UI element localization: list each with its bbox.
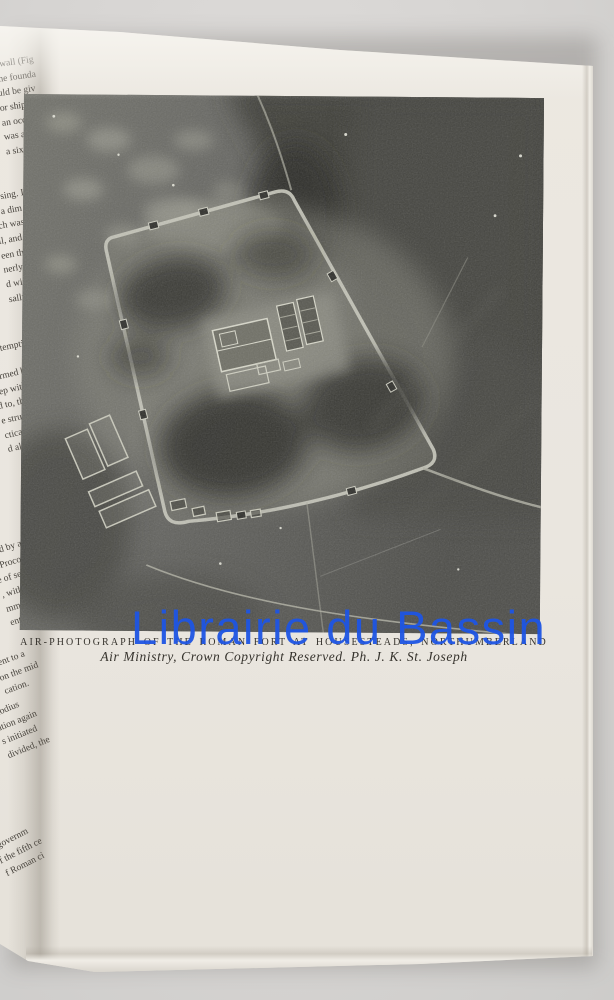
aerial-photograph-plate — [20, 94, 544, 634]
open-book-page: r wall (Figthe foundauld be givor shipsa… — [0, 0, 614, 1000]
aerial-photo-roman-fort — [20, 94, 544, 634]
bookseller-watermark: Librairie du Bassin — [131, 604, 546, 651]
book-photo-scene: r wall (Figthe foundauld be givor shipsa… — [0, 0, 614, 1000]
page-bottom-edge — [26, 946, 592, 972]
page-fore-edge — [582, 60, 593, 960]
